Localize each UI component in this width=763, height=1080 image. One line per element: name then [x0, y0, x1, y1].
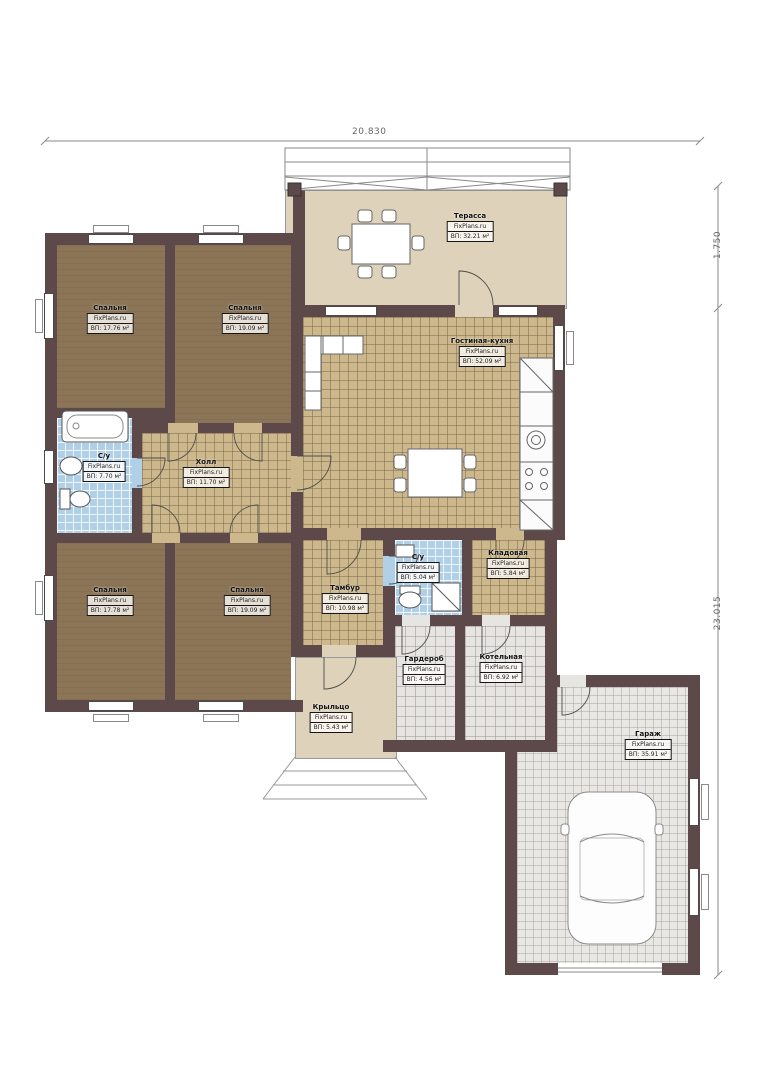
room-name: С/у: [83, 452, 126, 460]
wall: [45, 408, 142, 418]
window: [689, 778, 699, 826]
window-sill: [35, 581, 43, 615]
brand-watermark: FixPlans.ru: [481, 663, 522, 673]
room-label-terrace: Терасса FixPlans.ruВП: 32.21 м²: [447, 212, 494, 242]
bedroom-bottom-middle-floor: [175, 543, 291, 700]
dimension-top-width: 20.830: [352, 127, 387, 137]
wall: [383, 528, 565, 540]
wall: [165, 233, 175, 433]
brand-watermark: FixPlans.ru: [88, 596, 133, 606]
room-area: ВП: 17.78 м²: [88, 606, 133, 615]
room-name: Спальня: [222, 304, 269, 312]
door-opening: [482, 615, 510, 626]
garage-door-opening: [558, 963, 662, 975]
brand-watermark: FixPlans.ru: [225, 596, 270, 606]
window: [44, 575, 54, 621]
room-area: ВП: 5.04 м²: [398, 573, 439, 582]
room-label-bedroom-bottom-left: Спальня FixPlans.ruВП: 17.78 м²: [87, 586, 134, 616]
room-label-bathroom-left: С/у FixPlans.ruВП: 7.70 м²: [83, 452, 126, 482]
wall: [462, 540, 472, 615]
room-area: ВП: 32.21 м²: [448, 232, 493, 241]
brand-watermark: FixPlans.ru: [404, 665, 445, 675]
room-name: Холл: [183, 458, 230, 466]
room-area: ВП: 4.56 м²: [404, 675, 445, 684]
brand-watermark: FixPlans.ru: [88, 314, 133, 324]
window-sill: [203, 714, 239, 722]
window-sill: [35, 299, 43, 333]
room-area: ВП: 6.92 м²: [481, 673, 522, 682]
door-opening: [152, 533, 180, 543]
room-name: Гараж: [625, 730, 672, 738]
room-name: Гардероб: [403, 655, 446, 663]
floor-plan-canvas: 20.830 1.750 23.015 Терасса FixPlans.ruВ…: [0, 0, 763, 1080]
wall: [545, 540, 557, 745]
door-opening: [168, 423, 198, 433]
room-area: ВП: 5.84 м²: [488, 569, 529, 578]
room-area: ВП: 17.76 м²: [88, 324, 133, 333]
window-sill: [566, 331, 574, 365]
room-label-bedroom-bottom-middle: Спальня FixPlans.ruВП: 19.09 м²: [224, 586, 271, 616]
room-area: ВП: 11.70 м²: [184, 478, 229, 487]
wall: [291, 492, 303, 657]
wall: [140, 423, 303, 433]
room-label-bathroom-small: С/у FixPlans.ruВП: 5.04 м²: [397, 553, 440, 583]
wall: [455, 626, 465, 740]
room-name: Тамбур: [322, 584, 369, 592]
room-label-hall: Холл FixPlans.ruВП: 11.70 м²: [183, 458, 230, 488]
window-sill: [93, 714, 129, 722]
wall: [505, 745, 517, 975]
room-label-boiler-room: Котельная FixPlans.ruВП: 6.92 м²: [480, 653, 523, 683]
porch-steps: [263, 757, 427, 799]
window: [689, 868, 699, 916]
wall: [293, 188, 305, 309]
window: [325, 306, 377, 316]
wall: [165, 543, 175, 712]
room-label-bedroom-top-left: Спальня FixPlans.ruВП: 17.76 м²: [87, 304, 134, 334]
door-opening: [560, 675, 586, 687]
room-area: ВП: 19.09 м²: [225, 606, 270, 615]
door-opening: [132, 458, 142, 488]
brand-watermark: FixPlans.ru: [184, 468, 229, 478]
brand-watermark: FixPlans.ru: [311, 713, 352, 723]
window-sill: [203, 225, 239, 233]
room-name: Кладовая: [487, 549, 530, 557]
dimension-right-upper: 1.750: [713, 223, 723, 267]
room-label-bedroom-top-middle: Спальня FixPlans.ruВП: 19.09 м²: [222, 304, 269, 334]
room-area: ВП: 52.09 м²: [460, 357, 505, 366]
room-area: ВП: 5.43 м²: [311, 723, 352, 732]
brand-watermark: FixPlans.ru: [460, 347, 505, 357]
window-sill: [701, 784, 709, 820]
window: [198, 701, 244, 711]
door-opening: [327, 528, 361, 540]
room-area: ВП: 10.98 м²: [323, 604, 368, 613]
room-name: Спальня: [87, 304, 134, 312]
room-label-tambour: Тамбур FixPlans.ruВП: 10.98 м²: [322, 584, 369, 614]
room-name: С/у: [397, 553, 440, 561]
room-name: Котельная: [480, 653, 523, 661]
brand-watermark: FixPlans.ru: [323, 594, 368, 604]
terrace-floor: [285, 190, 567, 309]
window-sill: [93, 225, 129, 233]
window-sill: [701, 874, 709, 910]
door-opening: [496, 528, 524, 540]
room-label-pantry: Кладовая FixPlans.ruВП: 5.84 м²: [487, 549, 530, 579]
window: [88, 234, 134, 244]
room-label-living-kitchen: Гостиная-кухня FixPlans.ruВП: 52.09 м²: [451, 337, 514, 367]
dimension-right-lower: 23.015: [713, 591, 723, 635]
door-opening: [230, 533, 258, 543]
brand-watermark: FixPlans.ru: [223, 314, 268, 324]
room-name: Спальня: [224, 586, 271, 594]
room-name: Спальня: [87, 586, 134, 594]
room-area: ВП: 7.70 м²: [84, 472, 125, 481]
room-area: ВП: 19.09 м²: [223, 324, 268, 333]
window: [498, 306, 538, 316]
garage-floor: [517, 745, 688, 963]
wall: [383, 740, 557, 752]
room-label-garage: Гараж FixPlans.ruВП: 35.91 м²: [625, 730, 672, 760]
room-name: Терасса: [447, 212, 494, 220]
brand-watermark: FixPlans.ru: [488, 559, 529, 569]
door-opening: [455, 305, 493, 317]
door-opening: [234, 423, 262, 433]
brand-watermark: FixPlans.ru: [626, 740, 671, 750]
pergola-roof: [285, 148, 570, 190]
window: [554, 325, 564, 371]
door-opening: [291, 456, 303, 492]
room-area: ВП: 35.91 м²: [626, 750, 671, 759]
window: [88, 701, 134, 711]
door-opening: [322, 645, 356, 657]
window: [44, 450, 54, 484]
brand-watermark: FixPlans.ru: [448, 222, 493, 232]
brand-watermark: FixPlans.ru: [398, 563, 439, 573]
room-label-porch: Крыльцо FixPlans.ruВП: 5.43 м²: [310, 703, 353, 733]
bedroom-bottom-left-floor: [57, 543, 165, 700]
room-name: Крыльцо: [310, 703, 353, 711]
window: [44, 293, 54, 339]
room-name: Гостиная-кухня: [451, 337, 514, 345]
window: [198, 234, 244, 244]
room-label-wardrobe: Гардероб FixPlans.ruВП: 4.56 м²: [403, 655, 446, 685]
brand-watermark: FixPlans.ru: [84, 462, 125, 472]
door-opening: [383, 556, 395, 586]
living-kitchen-floor: [303, 317, 553, 528]
door-opening: [402, 615, 430, 626]
